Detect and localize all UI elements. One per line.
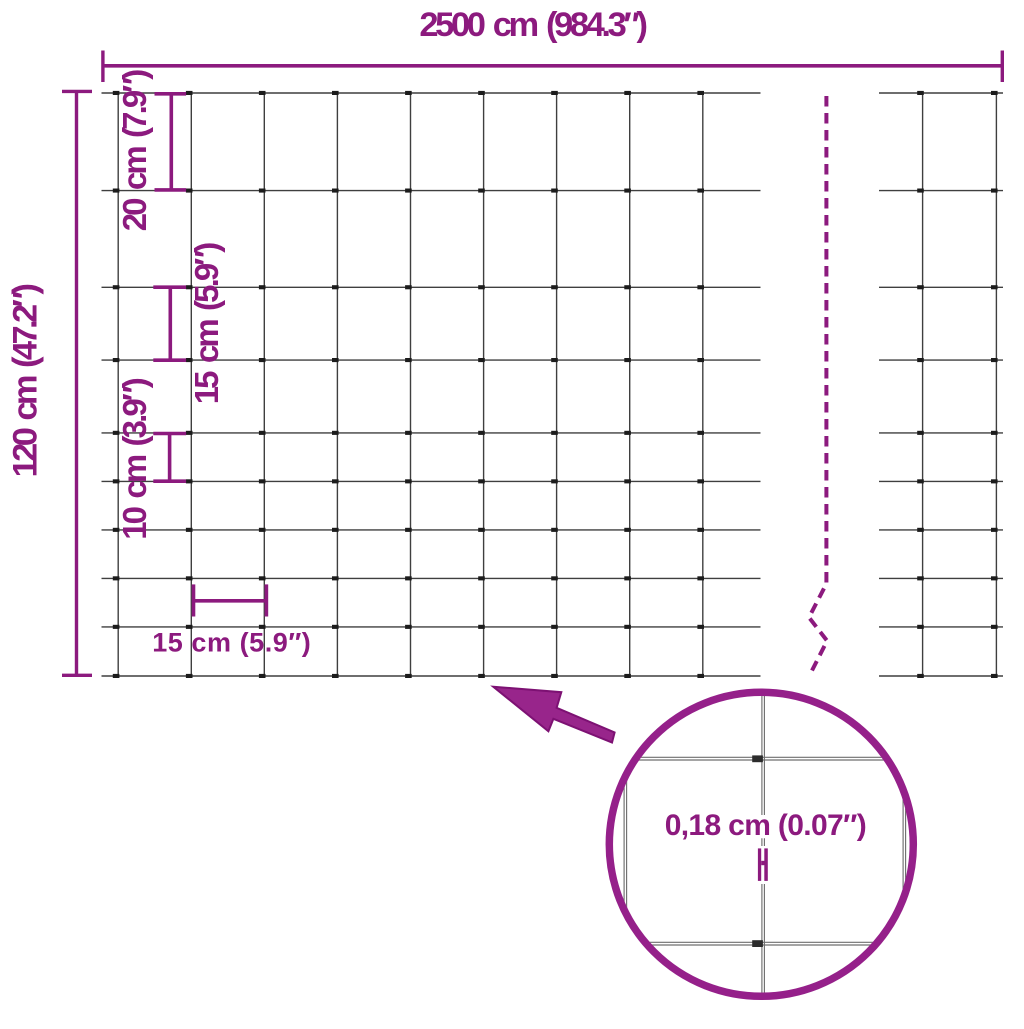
svg-text:15 cm (5.9″): 15 cm (5.9″) (188, 243, 225, 405)
svg-text:15 cm (5.9″): 15 cm (5.9″) (152, 628, 311, 658)
svg-text:120 cm (47.2″): 120 cm (47.2″) (6, 284, 44, 477)
svg-text:10 cm (3.9″): 10 cm (3.9″) (116, 378, 153, 540)
svg-text:0,18 cm (0.07″): 0,18 cm (0.07″) (665, 809, 866, 842)
svg-text:20 cm (7.9″): 20 cm (7.9″) (116, 70, 153, 232)
svg-text:2500 cm (984.3″): 2500 cm (984.3″) (419, 6, 646, 44)
